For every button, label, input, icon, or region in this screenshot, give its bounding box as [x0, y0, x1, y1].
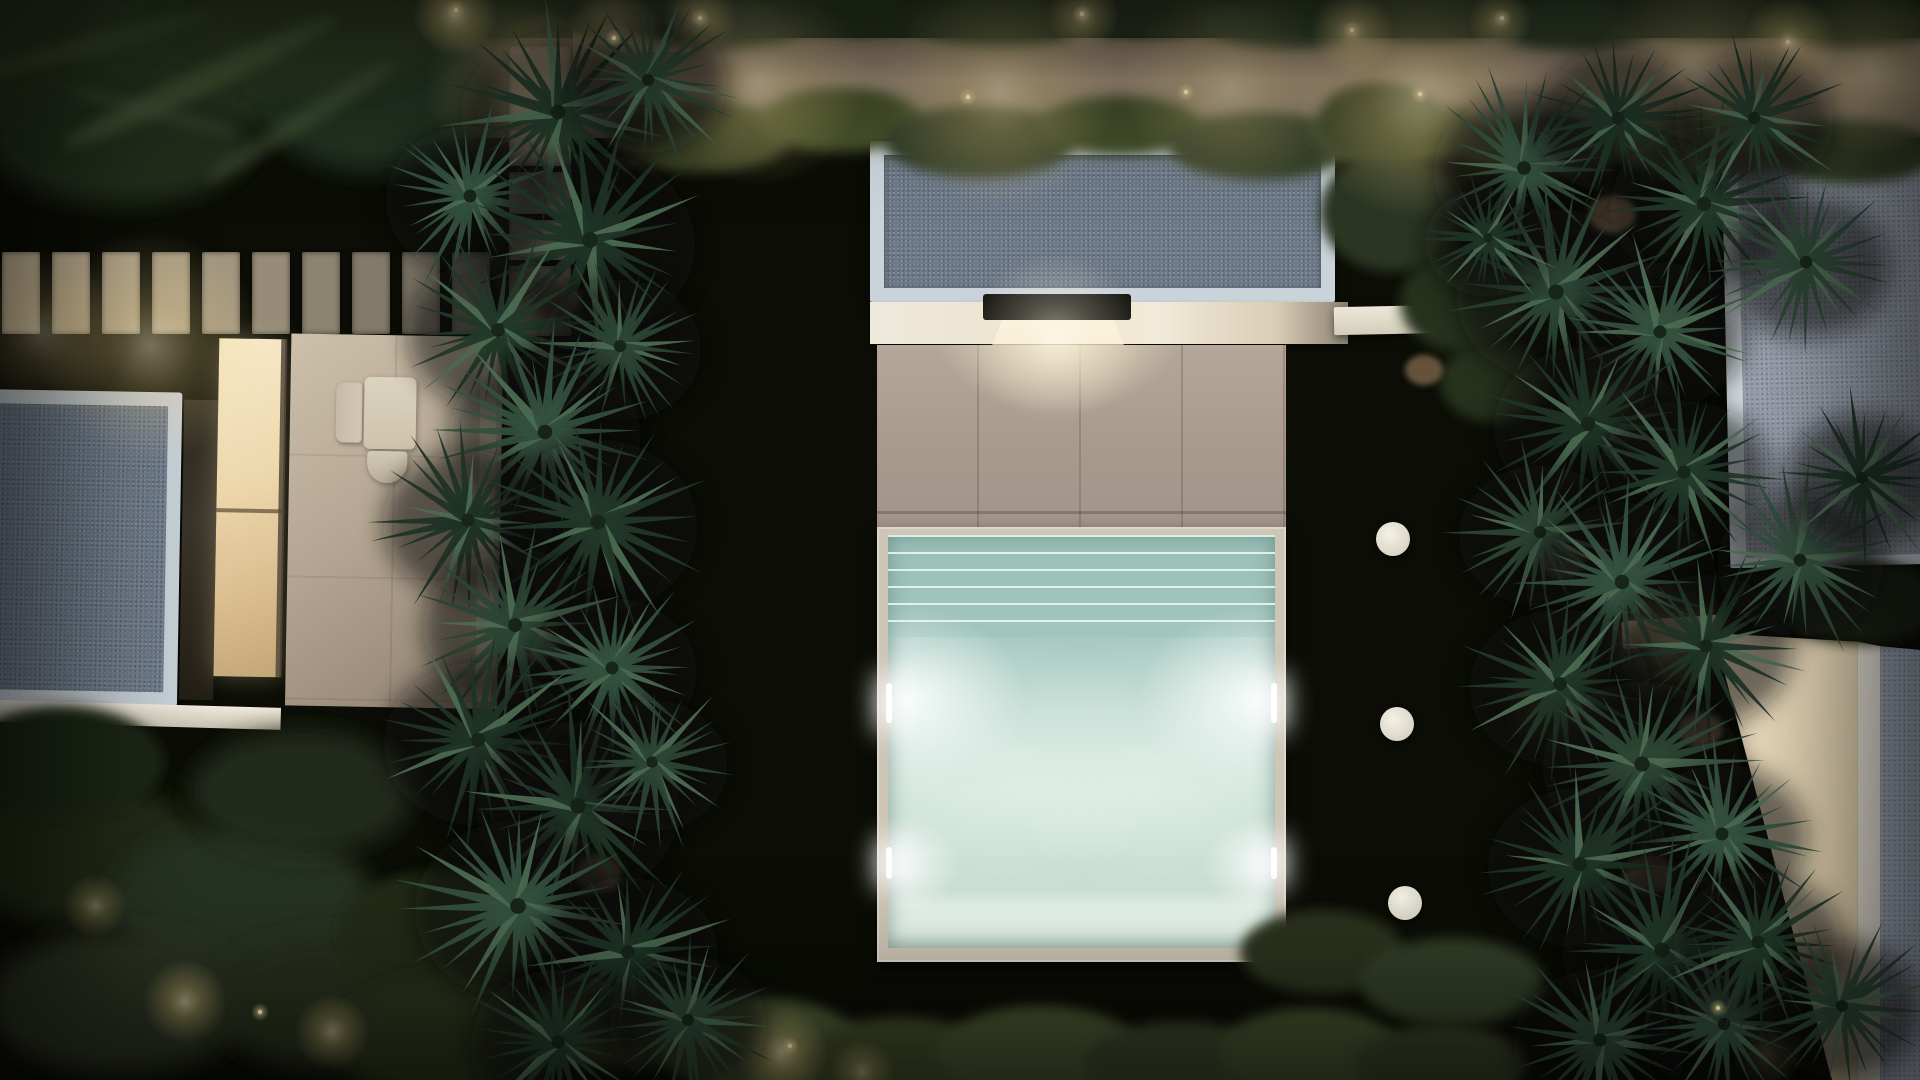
left-building-fascia: [0, 700, 281, 730]
pool-light-right: [1271, 683, 1277, 723]
daybed-group-2: [1331, 587, 1461, 707]
planter-wall: [612, 26, 692, 52]
lounger-left-2: [721, 582, 822, 701]
stepping-stone: [509, 130, 571, 166]
left-building: [0, 316, 534, 745]
right-roof: [1738, 160, 1920, 558]
stepping-stone: [509, 220, 571, 260]
pool-light-left: [886, 683, 892, 723]
side-table-1: [1376, 522, 1410, 556]
right-building: [1722, 144, 1920, 568]
lounger-cushion: [717, 371, 817, 372]
pool-light-bottom-right: [1271, 847, 1277, 879]
lounge-chair-seat: [363, 377, 416, 450]
stepping-stone: [509, 172, 571, 214]
pool-deck: [877, 345, 1286, 529]
side-table-2: [1380, 707, 1414, 741]
lounger-cushion: [723, 582, 823, 583]
lounger-cushion: [723, 582, 823, 583]
stepping-stone: [509, 46, 571, 124]
left-roof: [0, 403, 168, 692]
bottom-right-building: [1600, 600, 1920, 1080]
white-bench: [1334, 305, 1447, 335]
swimming-pool: [877, 527, 1286, 962]
pool-light-bottom-left: [886, 847, 892, 879]
pool-steps: [888, 535, 1275, 637]
aerial-villa-scene: [0, 0, 1920, 1080]
daybed-group-3: [1335, 767, 1463, 885]
pool-water: [888, 535, 1275, 948]
lounge-chair-backrest: [336, 382, 363, 442]
lounger-left-3: [750, 790, 842, 903]
side-table-3: [1388, 886, 1422, 920]
lounger-left-1: [715, 371, 816, 512]
roof-light-slot: [983, 294, 1131, 320]
lounger-cushion: [717, 371, 817, 372]
daybed-group-1: [1329, 405, 1459, 523]
lit-garden-wall: [573, 4, 613, 92]
left-roof-gap: [179, 400, 218, 701]
center-roof: [884, 155, 1321, 288]
